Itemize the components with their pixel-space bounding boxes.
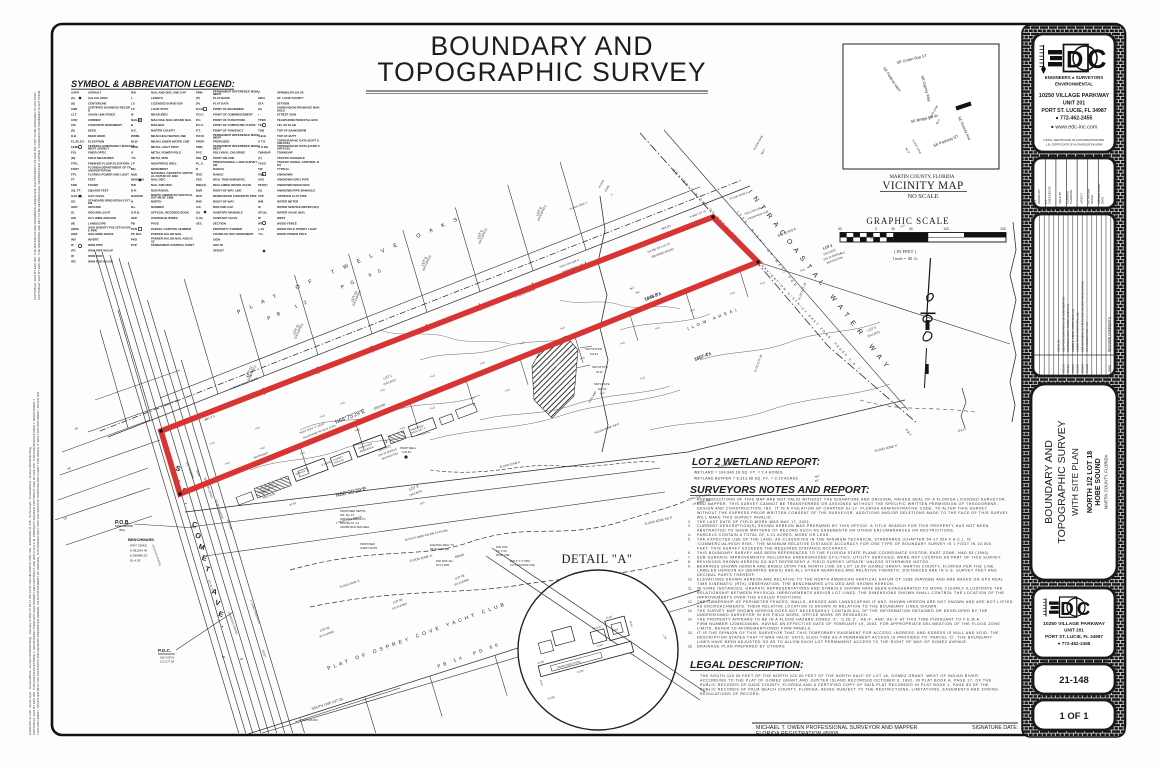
svg-text:( IN FEET ): ( IN FEET ) bbox=[894, 249, 916, 254]
svg-text:PARKER-KALON NAIL AND DI: PARKER-KALON NAIL AND DI bbox=[151, 236, 193, 240]
svg-text:SYMBOL & ABBREVIATION LEGEND:: SYMBOL & ABBREVIATION LEGEND: bbox=[71, 79, 235, 89]
svg-text:WETLAND = 104,840.18 SQ. FT. =: WETLAND = 104,840.18 SQ. FT. = 2.4 ACRES bbox=[694, 471, 783, 475]
svg-text:CORNER: CORNER bbox=[88, 118, 101, 122]
svg-text:S01°31'976"E: S01°31'976"E bbox=[585, 347, 602, 351]
svg-text:ST. LUCIE COUNTY: ST. LUCIE COUNTY bbox=[277, 96, 304, 100]
svg-text:METAL POWER POLE: METAL POWER POLE bbox=[151, 150, 181, 154]
svg-text:1 OF 1: 1 OF 1 bbox=[1059, 711, 1089, 722]
svg-text:P.C.: P.C. bbox=[196, 118, 201, 122]
svg-text:FLORIDA POWER AND LIGHT: FLORIDA POWER AND LIGHT bbox=[88, 172, 129, 176]
svg-text:PROPOSED SEPTIC: PROPOSED SEPTIC bbox=[340, 509, 366, 513]
svg-text:POINT OF CURVATURE: POINT OF CURVATURE bbox=[213, 118, 245, 122]
svg-text:● www.edc-inc.com: ● www.edc-inc.com bbox=[1051, 125, 1098, 131]
svg-text:NORTH: NORTH bbox=[151, 200, 161, 204]
svg-text:GRD: GRD bbox=[71, 205, 77, 209]
svg-text:DEED BOOK: DEED BOOK bbox=[88, 134, 106, 138]
svg-text:MARTIN COUNTY: MARTIN COUNTY bbox=[151, 129, 175, 133]
svg-text:D.B.: D.B. bbox=[71, 134, 77, 138]
svg-text:OFFICIAL RECORDS BOOK: OFFICIAL RECORDS BOOK bbox=[151, 210, 190, 214]
svg-text:TSGS: TSGS bbox=[258, 161, 266, 165]
svg-text:SQ. FT.: SQ. FT. bbox=[71, 189, 81, 193]
svg-text:MONBOX: MONBOX bbox=[131, 178, 144, 182]
svg-text:R/W: R/W bbox=[196, 200, 202, 204]
svg-text:REPRODUCTIONS OF THIS MAP ARE: REPRODUCTIONS OF THIS MAP ARE NOT VALID … bbox=[697, 498, 1005, 502]
svg-text:TIME KINEMATIC (RTK) OBSERVATI: TIME KINEMATIC (RTK) OBSERVATION. THE BE… bbox=[697, 582, 895, 586]
svg-text:ELEVATIONS SHOWN HEREON ARE RE: ELEVATIONS SHOWN HEREON ARE RELATIVE TO … bbox=[697, 578, 1004, 582]
svg-text:10250 VILLAGE PARKWAY: 10250 VILLAGE PARKWAY bbox=[1039, 93, 1110, 99]
svg-text:R&R: R&R bbox=[196, 189, 203, 193]
svg-text:P.S.: P.S. bbox=[1044, 199, 1048, 204]
svg-text:FFEL: FFEL bbox=[71, 161, 78, 165]
svg-text:P.R.M.: P.R.M. bbox=[196, 134, 205, 138]
svg-text:FND DISK 424: FND DISK 424 bbox=[436, 560, 453, 563]
svg-text:PROP WELL: PROP WELL bbox=[400, 446, 417, 450]
svg-text:(MA): (MA) bbox=[119, 528, 125, 532]
svg-text:PERMANENT CONTROL POINT: PERMANENT CONTROL POINT bbox=[151, 243, 194, 247]
svg-text:PUBLIC RECORDS OF PALM BEACH C: PUBLIC RECORDS OF PALM BEACH COUNTY, FLO… bbox=[700, 687, 998, 691]
svg-text:PGE: PGE bbox=[196, 178, 202, 182]
svg-text:L.B. CERTIFICATE OF AUTHORIZAT: L.B. CERTIFICATE OF AUTHORIZATION 8099 bbox=[1046, 143, 1103, 147]
svg-text:12.: 12. bbox=[688, 600, 693, 604]
svg-text:LOT 2 WETLAND REPORT:: LOT 2 WETLAND REPORT: bbox=[692, 457, 820, 468]
svg-text:E:935899.25': E:935899.25' bbox=[130, 554, 148, 558]
svg-text:05/21/21: 05/21/21 bbox=[1063, 363, 1065, 373]
svg-text:2.: 2. bbox=[688, 520, 691, 524]
svg-text:RADIOM: RADIOM bbox=[131, 194, 143, 198]
svg-text:LP: LP bbox=[131, 161, 135, 165]
svg-text:WITHOUT THE EXPRESS PRIOR WRIT: WITHOUT THE EXPRESS PRIOR WRITTEN CONSEN… bbox=[697, 511, 1009, 515]
svg-text:LIMITS, REFER TO AFOREMENTIONE: LIMITS, REFER TO AFOREMENTIONED FIRM PAN… bbox=[697, 627, 812, 631]
svg-text:C: C bbox=[1077, 598, 1091, 619]
svg-text:7.: 7. bbox=[688, 555, 691, 559]
svg-text:CURRENT DESCRIPTION(S) SHOWN H: CURRENT DESCRIPTION(S) SHOWN HEREON WAS … bbox=[697, 524, 989, 528]
svg-text:TOP OF BANK/BERM: TOP OF BANK/BERM bbox=[277, 129, 307, 133]
svg-text:SURVEYORS NOTES AND REPORT:: SURVEYORS NOTES AND REPORT: bbox=[690, 484, 870, 496]
svg-text:FEET: FEET bbox=[88, 178, 96, 182]
svg-text:(P): (P) bbox=[196, 96, 200, 100]
svg-text:GUY WIRE ANCHOR: GUY WIRE ANCHOR bbox=[88, 216, 117, 220]
svg-text:S63°11'44"E: S63°11'44"E bbox=[594, 382, 610, 386]
svg-text:S (S): S (S) bbox=[196, 216, 203, 220]
svg-text:116.24': 116.24' bbox=[590, 352, 599, 356]
svg-text:HDPE: HDPE bbox=[71, 227, 79, 231]
svg-text:VITRIFIED CLAY PIPE: VITRIFIED CLAY PIPE bbox=[277, 194, 307, 198]
svg-text:WOOD POWER POLE: WOOD POWER POLE bbox=[277, 232, 307, 236]
svg-text:NUMBER: NUMBER bbox=[151, 205, 165, 209]
svg-text:NON SE TC. 4.6: NON SE TC. 4.6 bbox=[340, 521, 360, 525]
svg-text:L: L bbox=[131, 96, 133, 100]
svg-text:PROP.: PROP. bbox=[196, 140, 205, 144]
svg-text:WOOD POLE STREET LIGHT: WOOD POLE STREET LIGHT bbox=[277, 227, 317, 231]
svg-text:REINFORCED CONCRETE PIPE: REINFORCED CONCRETE PIPE bbox=[213, 194, 257, 198]
svg-text:PORT ST. LUCIE, FL 34987: PORT ST. LUCIE, FL 34987 bbox=[1041, 108, 1106, 114]
svg-text:ADJ 01.23: ADJ 01.23 bbox=[1057, 339, 1061, 352]
svg-text:SEC: SEC bbox=[196, 221, 203, 225]
svg-text:SIGNATURE DATE:: SIGNATURE DATE: bbox=[972, 725, 1018, 731]
svg-text:DATE: DATE bbox=[1108, 365, 1112, 372]
svg-text:15.: 15. bbox=[688, 631, 693, 635]
svg-text:SANITARY MANHOLE: SANITARY MANHOLE bbox=[213, 210, 243, 214]
svg-text:SCALE: SCALE bbox=[1090, 195, 1094, 204]
svg-text:(PNT 33042): (PNT 33042) bbox=[130, 544, 147, 548]
svg-text:AS ENCROACHMENTS. THEIR RELATI: AS ENCROACHMENTS. THEIR RELATIVE LOCATIO… bbox=[697, 604, 938, 608]
svg-text:6.: 6. bbox=[688, 551, 691, 555]
svg-text:February 9 2022: February 9 2022 bbox=[1097, 183, 1101, 204]
svg-text:SW.6: SW.6 bbox=[258, 96, 265, 100]
svg-text:ENVIRONMENTAL: ENVIRONMENTAL bbox=[1055, 82, 1093, 87]
svg-text:● 772-462-2455: ● 772-462-2455 bbox=[1056, 116, 1093, 122]
svg-text:PROFESSIONAL LAND SURVEY: PROFESSIONAL LAND SURVEY bbox=[213, 160, 257, 164]
svg-text:N/D: N/D bbox=[131, 91, 136, 95]
svg-text:STREET SIGN: STREET SIGN bbox=[277, 112, 296, 116]
svg-text:THE SOUTH 110.00 FEET OF THE N: THE SOUTH 110.00 FEET OF THE NORTH 220.0… bbox=[700, 674, 980, 678]
svg-text:ENGINEERS ● SURVEYORS: ENGINEERS ● SURVEYORS bbox=[1045, 75, 1104, 80]
svg-text:LAYOUT: LAYOUT bbox=[1079, 193, 1083, 204]
svg-text:ALT FOUND: ALT FOUND bbox=[302, 718, 318, 722]
svg-text:FT: FT bbox=[71, 178, 75, 182]
svg-text:P.O.B.: P.O.B. bbox=[115, 520, 130, 526]
svg-text:RIGHT-OF-WAY: RIGHT-OF-WAY bbox=[213, 200, 234, 204]
svg-text:WATER SERVICE METER (W4): WATER SERVICE METER (W4) bbox=[277, 205, 319, 209]
svg-text:N.R.: N.R. bbox=[131, 189, 137, 193]
svg-text:4.: 4. bbox=[688, 533, 691, 537]
svg-text:PB: PB bbox=[131, 221, 135, 225]
svg-text:GL: GL bbox=[71, 210, 75, 214]
svg-text:ADD GAS (MHO) GLS ELEV.OLDT AC: ADD GAS (MHO) GLS ELEV.OLDT ACCESS WALK-… bbox=[1080, 281, 1084, 352]
svg-text:DATE: DATE bbox=[1101, 197, 1105, 204]
svg-text:10.: 10. bbox=[688, 578, 693, 582]
svg-text:COPYRIGHT 2021 BY EDC INC. THE: COPYRIGHT 2021 BY EDC INC. THE DRAWINGS … bbox=[37, 90, 41, 300]
svg-text:IN SOME INSTANCES, GRAPHIC REP: IN SOME INSTANCES, GRAPHIC REPRESENTATIO… bbox=[697, 587, 1003, 591]
svg-text:5.: 5. bbox=[688, 538, 691, 542]
svg-text:DRAINAGE PLAN PREPARED BY OTHE: DRAINAGE PLAN PREPARED BY OTHERS bbox=[697, 644, 785, 648]
svg-text:9.: 9. bbox=[688, 564, 691, 568]
svg-text:05/24/21: 05/24/21 bbox=[1068, 363, 1070, 373]
svg-text:1 inch = 60 ft.: 1 inch = 60 ft. bbox=[892, 256, 918, 261]
svg-text:03/08/21: 03/08/21 bbox=[1073, 363, 1075, 373]
svg-text:8.: 8. bbox=[688, 560, 691, 564]
svg-text:P.L.S.: P.L.S. bbox=[196, 161, 204, 165]
svg-text:"O+: "O+ bbox=[258, 232, 264, 236]
svg-text:ADDED PRIOR POSTS WALL (A): ADDED PRIOR POSTS WALL (A) bbox=[1076, 313, 1080, 352]
svg-text:SANITARY VALVE: SANITARY VALVE bbox=[213, 216, 237, 220]
svg-text:NAIL AND DISC AND CAP: NAIL AND DISC AND CAP bbox=[151, 91, 186, 95]
svg-text:01/18/22: 01/18/22 bbox=[1087, 363, 1089, 373]
svg-text:PORT ST. LUCIE, FL 34987: PORT ST. LUCIE, FL 34987 bbox=[1045, 634, 1103, 639]
svg-text:S16°10'79"E: S16°10'79"E bbox=[592, 365, 608, 369]
svg-text:GD: GD bbox=[71, 200, 75, 204]
svg-text:30: 30 bbox=[891, 227, 895, 231]
svg-text:● 772-462-2455: ● 772-462-2455 bbox=[1058, 641, 1091, 646]
svg-text:FOUND: FOUND bbox=[88, 183, 98, 187]
svg-text:METAL PIPE: METAL PIPE bbox=[151, 156, 168, 160]
svg-text:(M): (M) bbox=[71, 156, 75, 160]
svg-text:RNG(X): RNG(X) bbox=[196, 183, 206, 187]
svg-text:POINT OF COMPOUND CURVE: POINT OF COMPOUND CURVE bbox=[213, 123, 256, 127]
svg-text:PARCELS CONTAIN A TOTAL OF 4.2: PARCELS CONTAIN A TOTAL OF 4.21 ACRES, M… bbox=[697, 533, 830, 537]
svg-text:IRON ROD W/CAP: IRON ROD W/CAP bbox=[88, 259, 113, 263]
svg-text:CBR: CBR bbox=[71, 107, 78, 111]
svg-text:F.B.P.E. CERTIFICATE OF AUTHOR: F.B.P.E. CERTIFICATE OF AUTHORIZATION 95… bbox=[1043, 138, 1105, 142]
svg-text:CLF: CLF bbox=[71, 112, 77, 116]
svg-text:EL./ELEV.: EL./ELEV. bbox=[71, 140, 85, 144]
svg-text:ABSTRACTED TO SHOW MATTERS OF: ABSTRACTED TO SHOW MATTERS OF RECORD SUC… bbox=[697, 529, 955, 533]
svg-text:WM: WM bbox=[258, 200, 264, 204]
svg-text:(C): (C) bbox=[71, 96, 75, 100]
svg-text:FIELD MEASURED: FIELD MEASURED bbox=[88, 156, 114, 160]
svg-text:BOUNDARY AND: BOUNDARY AND bbox=[1043, 440, 1055, 524]
svg-text:FOUND-OF-WAY MONUMENT: FOUND-OF-WAY MONUMENT bbox=[213, 232, 254, 236]
svg-text:PUBLIC RECORDS OF DADE COUNTY,: PUBLIC RECORDS OF DADE COUNTY, FLORIDA A… bbox=[700, 683, 989, 687]
svg-text:PKD: PKD bbox=[131, 238, 137, 242]
svg-text:S T B: S T B bbox=[258, 140, 265, 144]
svg-text:CHECKED BY: CHECKED BY bbox=[1048, 186, 1052, 204]
svg-text:RELATIONSHIP BETWEEN PHYSICAL: RELATIONSHIP BETWEEN PHYSICAL IMPROVEMEN… bbox=[697, 591, 1004, 595]
svg-text:REAL TIME KINEMATIC: REAL TIME KINEMATIC bbox=[213, 178, 246, 182]
svg-text:FND COR: FND COR bbox=[496, 546, 508, 549]
svg-text:WOOD FENCE: WOOD FENCE bbox=[277, 221, 297, 225]
svg-text:WATER METER: WATER METER bbox=[277, 200, 299, 204]
svg-text:RANGE: RANGE bbox=[213, 172, 224, 176]
svg-text:LIGHT POST: LIGHT POST bbox=[151, 107, 169, 111]
svg-text:3.9' S ON PROP LINE: 3.9' S ON PROP LINE bbox=[510, 564, 535, 567]
svg-text:SPIGOT: SPIGOT bbox=[213, 249, 224, 253]
svg-text:PLAT BOOK: PLAT BOOK bbox=[213, 96, 231, 100]
svg-text:DRAWN BY: DRAWN BY bbox=[1037, 189, 1041, 204]
svg-text:WILL MAKE THIS SURVEY INVALID.: WILL MAKE THIS SURVEY INVALID. bbox=[697, 515, 773, 519]
svg-text:PROPOSED: PROPOSED bbox=[360, 542, 375, 546]
svg-text:PRM: PRM bbox=[196, 91, 203, 95]
svg-text:06/09/21: 06/09/21 bbox=[1082, 363, 1084, 373]
svg-text:POL: POL bbox=[196, 156, 202, 160]
svg-text:CERTIFIED BUSINESS RECOR: CERTIFIED BUSINESS RECOR bbox=[88, 106, 131, 110]
svg-text:DECIMAL PARTS THEREOF.: DECIMAL PARTS THEREOF. bbox=[697, 573, 756, 577]
svg-text:SOUTH: SOUTH bbox=[213, 243, 223, 247]
svg-text:RCP: RCP bbox=[196, 194, 202, 198]
svg-text:GUEST SUITE: GUEST SUITE bbox=[360, 546, 378, 550]
svg-text:W: W bbox=[258, 216, 261, 220]
svg-text:O.R.B.: O.R.B. bbox=[131, 210, 140, 214]
svg-text:(R): (R) bbox=[71, 221, 75, 225]
svg-text:UGE: UGE bbox=[258, 178, 264, 182]
svg-text:11.: 11. bbox=[688, 587, 692, 591]
svg-text:TRAFFIC SIGNAL CONTROL B: TRAFFIC SIGNAL CONTROL B bbox=[277, 160, 319, 164]
svg-text:COR: COR bbox=[71, 118, 78, 122]
svg-text:P.S.: P.S. bbox=[1034, 199, 1038, 204]
svg-text:INS. SQ. FT.: INS. SQ. FT. bbox=[340, 513, 355, 517]
svg-text:HOBE SOUND: HOBE SOUND bbox=[1095, 458, 1102, 505]
svg-text:ASPHALT: ASPHALT bbox=[88, 91, 102, 95]
svg-text:REVISION COMMENTS: REVISION COMMENTS bbox=[1108, 317, 1112, 352]
svg-text:P.T.: P.T. bbox=[196, 129, 201, 133]
svg-text:MAILBOX: MAILBOX bbox=[151, 123, 164, 127]
svg-text:N:981264.40': N:981264.40' bbox=[130, 549, 148, 553]
svg-text:REGULATIONS OF RECORD.: REGULATIONS OF RECORD. bbox=[700, 692, 761, 696]
svg-text:0: 0 bbox=[875, 227, 877, 231]
svg-text:WETLAND BUFFER = 8,313.68 SQ.: WETLAND BUFFER = 8,313.68 SQ. FT. = 0.19… bbox=[694, 477, 798, 481]
svg-text:PRM: PRM bbox=[196, 145, 203, 149]
svg-text:UNOBSTRUCTED AREA: UNOBSTRUCTED AREA bbox=[340, 525, 370, 529]
svg-text:PARCEL CONTROL NUMBER: PARCEL CONTROL NUMBER bbox=[151, 227, 192, 231]
svg-text:LICENSED SURVEYOR: LICENSED SURVEYOR bbox=[151, 101, 184, 105]
svg-text:THE OWNERSHIP OF PERIMETER FEN: THE OWNERSHIP OF PERIMETER FENCES, WALLS… bbox=[697, 600, 1013, 604]
svg-text:TOB: TOB bbox=[258, 129, 264, 133]
svg-text:RECLAIMED WATER VALVE: RECLAIMED WATER VALVE bbox=[213, 183, 251, 187]
svg-text:WATER VALVE (WV): WATER VALVE (WV) bbox=[277, 210, 305, 214]
svg-text:DETAIL "A": DETAIL "A" bbox=[561, 552, 632, 566]
svg-text:FLORIDA REGISTRATION #5008: FLORIDA REGISTRATION #5008 bbox=[756, 731, 838, 737]
svg-text:FPL: FPL bbox=[71, 172, 77, 176]
svg-text:(T): (T) bbox=[258, 156, 262, 160]
svg-text:INVERT: INVERT bbox=[88, 238, 99, 242]
svg-text:UNIT 201: UNIT 201 bbox=[1063, 101, 1085, 107]
svg-text:FIO.: FIO. bbox=[71, 150, 77, 154]
svg-text:N&D: N&D bbox=[131, 172, 137, 176]
svg-text:B: B bbox=[131, 123, 133, 127]
svg-text:IT IS THE OPINION OF THIS SURV: IT IS THE OPINION OF THIS SURVEYOR THAT … bbox=[697, 631, 999, 635]
svg-text:GW: GW bbox=[71, 216, 76, 220]
svg-text:LINES HAVE BEEN ADJUSTED SO AS: LINES HAVE BEEN ADJUSTED SO AS TO ALLOW … bbox=[697, 640, 968, 644]
svg-text:1.: 1. bbox=[688, 498, 691, 502]
svg-text:TWNSHP: TWNSHP bbox=[258, 150, 271, 154]
svg-text:IP: IP bbox=[71, 243, 74, 247]
svg-text:NON-PRESS WELL: NON-PRESS WELL bbox=[151, 161, 177, 165]
svg-text:POLYVINYL CHLORIDE: POLYVINYL CHLORIDE bbox=[213, 150, 245, 154]
svg-text:(S): (S) bbox=[258, 107, 262, 111]
svg-text:FND: FND bbox=[71, 183, 77, 187]
svg-text:STA: STA bbox=[258, 101, 264, 105]
svg-text:SUB-SURFACE IMPROVEMENTS INCLU: SUB-SURFACE IMPROVEMENTS INCLUDING UNDER… bbox=[697, 555, 1002, 559]
svg-text:VCP: VCP bbox=[258, 194, 264, 198]
svg-text:(D): (D) bbox=[71, 129, 75, 133]
svg-text:N.E.: N.E. bbox=[131, 129, 137, 133]
svg-text:PVP: PVP bbox=[131, 243, 137, 247]
svg-text:14.: 14. bbox=[688, 618, 693, 622]
svg-text:FIELD BY: FIELD BY bbox=[1058, 191, 1062, 204]
svg-text:WRML: WRML bbox=[131, 134, 140, 138]
svg-text:13.: 13. bbox=[688, 609, 693, 613]
svg-text:TOPOGRAPHIC SURVEY: TOPOGRAPHIC SURVEY bbox=[1056, 420, 1068, 543]
svg-text:NORTH 1/2 LOT 18: NORTH 1/2 LOT 18 bbox=[1087, 451, 1094, 513]
svg-text:BEARINGS SHOWN HEREIN ARE BASE: BEARINGS SHOWN HEREIN ARE BASED UPON THE… bbox=[697, 564, 994, 568]
svg-text:PLANNER: PLANNER bbox=[1065, 191, 1069, 204]
svg-text:RGE: RGE bbox=[196, 172, 202, 176]
svg-text:12/18/21: 12/18/21 bbox=[1078, 363, 1080, 373]
svg-text:MEASURED: MEASURED bbox=[151, 112, 168, 116]
svg-text:THIS BOUNDARY SURVEY HAS BEEN: THIS BOUNDARY SURVEY HAS BEEN REFERENCED… bbox=[697, 551, 990, 555]
svg-text:1/2 LOT 18: 1/2 LOT 18 bbox=[160, 660, 174, 664]
svg-text:REVIEWED ADDTL TOWER GATE PLAN: REVIEWED ADDTL TOWER GATE PLAN bbox=[1066, 304, 1070, 352]
svg-text:OHP: OHP bbox=[131, 216, 137, 220]
svg-text:CHAIN LINK FENCE: CHAIN LINK FENCE bbox=[88, 112, 115, 116]
svg-text:ADDED E. PRIOR NORTH WALL (A): ADDED E. PRIOR NORTH WALL (A) bbox=[1071, 309, 1075, 352]
svg-text:PAGE: PAGE bbox=[151, 221, 159, 225]
svg-text:S O BK: S O BK bbox=[258, 145, 269, 149]
svg-text:"CL: "CL bbox=[131, 156, 136, 160]
svg-text:TPED: TPED bbox=[258, 118, 266, 122]
svg-text:(P): (P) bbox=[196, 101, 200, 105]
svg-text:FIRM NUMBER 12085C0008N, HAVIN: FIRM NUMBER 12085C0008N, HAVING AN EFFEC… bbox=[697, 622, 1000, 626]
svg-text:R/D: R/D bbox=[131, 183, 136, 187]
svg-text:AND MAPPER. THIS SURVEY CANNOT: AND MAPPER. THIS SURVEY CANNOT BE TRANSF… bbox=[697, 502, 998, 506]
svg-text:NLW: NLW bbox=[131, 140, 138, 144]
svg-text:#01 LARGER POOL + RV: #01 LARGER POOL + RV bbox=[1085, 322, 1089, 352]
svg-text:LEGAL DESCRIPTION:: LEGAL DESCRIPTION: bbox=[690, 659, 804, 671]
svg-text:GROUND: GROUND bbox=[88, 205, 101, 209]
svg-text:LENGTH: LENGTH bbox=[151, 96, 163, 100]
svg-text:TEL OF SLAB: TEL OF SLAB bbox=[277, 123, 296, 127]
svg-text:GRAVEL & DRIVE TO: GRAVEL & DRIVE TO bbox=[340, 517, 366, 521]
svg-text:STANDARD IRRIGATION SYST: STANDARD IRRIGATION SYST bbox=[88, 198, 130, 202]
svg-text:MH: MH bbox=[131, 167, 136, 171]
svg-text:ACCORDING TO THE PLAT OF GOMEZ: ACCORDING TO THE PLAT OF GOMEZ GRANT AND… bbox=[700, 678, 992, 682]
svg-text:VICINITY MAP: VICINITY MAP bbox=[882, 180, 963, 192]
svg-text:IRON PIPE W/CAP: IRON PIPE W/CAP bbox=[88, 249, 113, 253]
svg-text:METAL LIGHT POST: METAL LIGHT POST bbox=[151, 145, 179, 149]
svg-text:HWF: HWF bbox=[71, 232, 78, 236]
svg-text:BE (ELEVATED): BE (ELEVATED) bbox=[430, 547, 449, 551]
svg-text:BENCHMARK: BENCHMARK bbox=[128, 537, 154, 542]
svg-text:(U): (U) bbox=[258, 189, 262, 193]
svg-text:|--O|: |--O| bbox=[258, 227, 264, 231]
svg-text:FDOT: FDOT bbox=[71, 167, 79, 171]
svg-text:TELEPHONE PEDESTAL BOX: TELEPHONE PEDESTAL BOX bbox=[277, 118, 318, 122]
svg-text:DEED: DEED bbox=[88, 129, 96, 133]
svg-text:CM: CM bbox=[71, 123, 76, 127]
svg-text:RIGHT-OF-WAY LINE: RIGHT-OF-WAY LINE bbox=[213, 189, 241, 193]
svg-text:POINT OF BEGINNING: POINT OF BEGINNING bbox=[213, 107, 245, 111]
svg-text:THE PROPERTY APPEARS TO BE IN: THE PROPERTY APPEARS TO BE IN A FLOOD HA… bbox=[697, 618, 981, 622]
svg-text:SP [X]: SP [X] bbox=[258, 210, 266, 214]
svg-text:TW: TW bbox=[258, 167, 263, 171]
svg-text:P.C.C.: P.C.C. bbox=[196, 123, 204, 127]
svg-text:POINT OF COMMENCEMENT: POINT OF COMMENCEMENT bbox=[213, 112, 253, 116]
svg-text:N: N bbox=[131, 200, 133, 204]
svg-text:PVC: PVC bbox=[196, 150, 203, 154]
svg-text:SQUARE FEET: SQUARE FEET bbox=[88, 189, 109, 193]
svg-text:203.46': 203.46' bbox=[598, 387, 607, 391]
svg-text:FEET. THIS SURVEY EXCEEDS THE: FEET. THIS SURVEY EXCEEDS THE REQUIRED D… bbox=[697, 546, 848, 550]
svg-text:PROPERTY CORNER: PROPERTY CORNER bbox=[213, 227, 243, 231]
svg-text:GRAPHIC SCALE: GRAPHIC SCALE bbox=[866, 216, 949, 226]
svg-text:PED(T): PED(T) bbox=[258, 183, 268, 187]
svg-text:(S): (S) bbox=[196, 210, 200, 214]
svg-text:EL:4.30': EL:4.30' bbox=[130, 559, 141, 563]
svg-text:MEAN LOWER WATER LINE: MEAN LOWER WATER LINE bbox=[151, 140, 190, 144]
svg-text:SECTION: SECTION bbox=[213, 221, 226, 225]
svg-text:WF: WF bbox=[258, 221, 263, 225]
svg-text:OVERHEAD WIRES: OVERHEAD WIRES bbox=[151, 216, 178, 220]
svg-text:MAG NAIL MAG BRAND NAIL: MAG NAIL MAG BRAND NAIL bbox=[151, 118, 192, 122]
svg-text:NAIL DISC: NAIL DISC bbox=[151, 178, 166, 182]
svg-text:10250 VILLAGE PARKWAY: 10250 VILLAGE PARKWAY bbox=[1043, 621, 1105, 627]
svg-text:LABELED HEREON AS (BEARING BAS: LABELED HEREON AS (BEARING BASIS) AND AL… bbox=[697, 569, 997, 573]
svg-text:+: + bbox=[258, 112, 260, 116]
svg-text:LS: LS bbox=[131, 101, 135, 105]
svg-text:IMPROVEMENTS OVER THE SCALED P: IMPROVEMENTS OVER THE SCALED POSITIONS. bbox=[697, 595, 803, 599]
svg-text:4.30.30': 4.30.30' bbox=[402, 450, 412, 454]
svg-text:ASPH: ASPH bbox=[71, 91, 79, 95]
svg-text:+: + bbox=[258, 91, 260, 95]
svg-text:UNIT 201: UNIT 201 bbox=[1064, 628, 1084, 633]
svg-text:26.14': 26.14' bbox=[596, 370, 603, 374]
svg-text:16.: 16. bbox=[688, 644, 693, 648]
svg-text:120: 120 bbox=[943, 227, 949, 231]
svg-text:IRON PIPE: IRON PIPE bbox=[88, 243, 103, 247]
svg-text:P.O.C.: P.O.C. bbox=[158, 648, 171, 653]
svg-text:W: W bbox=[258, 205, 261, 209]
svg-text:CONCRETE MONUMENT: CONCRETE MONUMENT bbox=[88, 123, 122, 127]
